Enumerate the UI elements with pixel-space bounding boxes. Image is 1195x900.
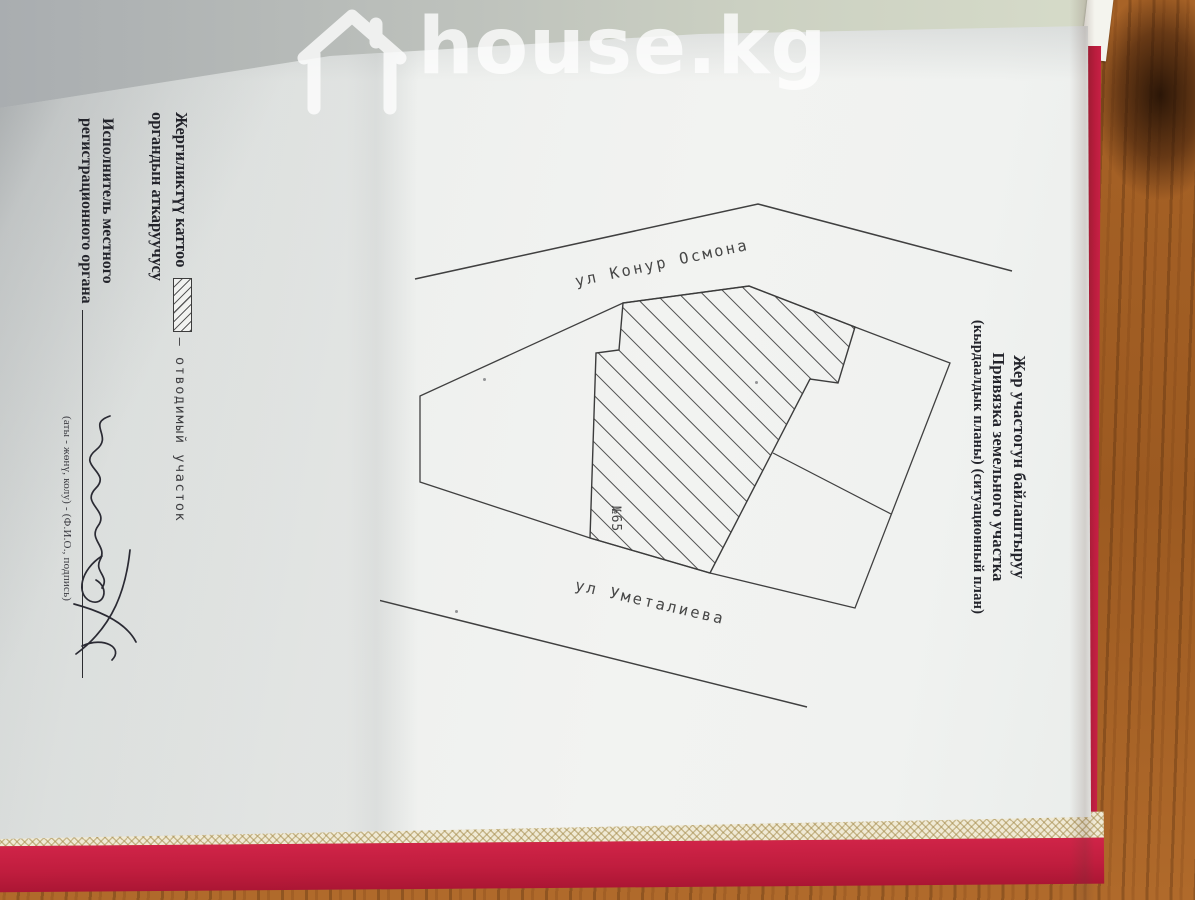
watermark-text: house.kg bbox=[418, 2, 827, 92]
photo-of-land-plot-document: ул Конур Осмона ул Уметалиева №65 Жер уч… bbox=[0, 0, 1195, 900]
legend-symbol-label: — отводимый участок bbox=[172, 338, 188, 523]
street-line-konur-osmona bbox=[415, 204, 1012, 279]
handwritten-signature bbox=[52, 408, 162, 668]
hatched-parcel-legend-swatch bbox=[173, 278, 192, 332]
street-label-top: ул Конур Осмона bbox=[573, 236, 750, 291]
cover-red-band bbox=[0, 838, 1104, 893]
parcel-division-line bbox=[773, 453, 891, 514]
document-title-block: Жер участогун байлаштыруу Привязка земел… bbox=[968, 283, 1030, 651]
allocated-parcel-hatched bbox=[590, 286, 855, 573]
street-line-umetalieva bbox=[380, 600, 807, 707]
title-line-1: Жер участогун байлаштыруу bbox=[1009, 283, 1030, 651]
title-line-2: Привязка земельного участка bbox=[987, 283, 1008, 651]
executor-line-2: регистрационного органа bbox=[78, 118, 95, 304]
site-plan-drawing: ул Конур Осмона ул Уметалиева №65 bbox=[380, 170, 1030, 730]
house-icon bbox=[290, 2, 415, 120]
watermark: house.kg bbox=[290, 0, 930, 125]
title-line-3: (кырдаалдык планы) (ситуационный план) bbox=[968, 283, 987, 651]
legend-text-prefix: Жергиликтүү каттоо bbox=[172, 112, 191, 268]
street-label-bottom: ул Уметалиева bbox=[573, 576, 727, 628]
parcel-number-label: №65 bbox=[608, 506, 623, 532]
